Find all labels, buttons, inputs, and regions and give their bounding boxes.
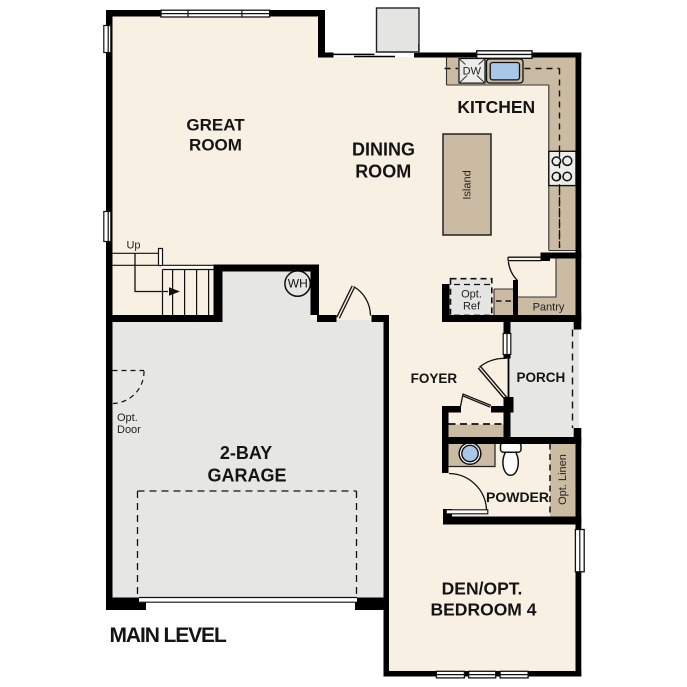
- svg-text:ROOM: ROOM: [189, 136, 242, 155]
- svg-text:Door: Door: [117, 424, 141, 436]
- svg-text:MAIN LEVEL: MAIN LEVEL: [110, 624, 227, 647]
- svg-text:DEN/OPT.: DEN/OPT.: [442, 578, 523, 598]
- svg-text:Up: Up: [126, 239, 140, 251]
- svg-text:2-BAY: 2-BAY: [220, 443, 272, 463]
- svg-text:DW: DW: [463, 65, 482, 77]
- svg-text:DINING: DINING: [352, 140, 415, 160]
- svg-text:Opt.: Opt.: [117, 412, 138, 424]
- svg-text:Island: Island: [462, 170, 474, 199]
- svg-text:Ref: Ref: [463, 301, 481, 313]
- svg-text:GREAT: GREAT: [186, 115, 245, 134]
- svg-text:Opt.: Opt.: [461, 289, 482, 301]
- svg-text:Opt. Linen: Opt. Linen: [557, 454, 569, 505]
- svg-text:GARAGE: GARAGE: [207, 465, 286, 485]
- svg-text:KITCHEN: KITCHEN: [457, 97, 535, 117]
- svg-text:FOYER: FOYER: [411, 371, 458, 386]
- svg-text:BEDROOM 4: BEDROOM 4: [431, 599, 537, 619]
- svg-text:ROOM: ROOM: [355, 161, 411, 181]
- svg-text:Pantry: Pantry: [533, 302, 565, 314]
- svg-text:POWDER: POWDER: [486, 489, 549, 505]
- svg-text:PORCH: PORCH: [517, 370, 566, 385]
- svg-text:WH: WH: [288, 277, 308, 291]
